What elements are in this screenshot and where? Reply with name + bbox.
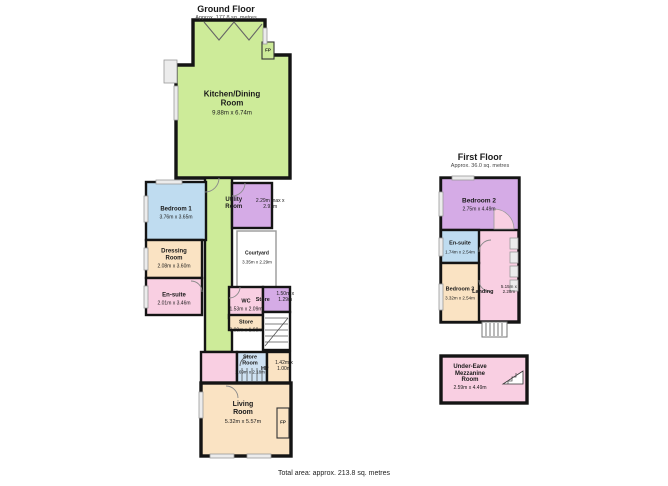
window <box>452 176 474 180</box>
floorplan-page: Ground Floor Approx. 177.8 sq. metres Fi… <box>0 0 668 486</box>
room-dressing <box>146 240 202 278</box>
window <box>439 284 443 310</box>
room-hp <box>267 352 290 383</box>
floorplan-drawing <box>0 0 668 486</box>
plan-area-text: Approx. 36.0 sq. metres <box>451 163 509 170</box>
room-utility <box>232 183 272 228</box>
window <box>144 196 148 222</box>
window <box>144 286 148 308</box>
room-store-lower <box>229 315 263 330</box>
window <box>439 192 443 216</box>
fireplace-kitchen <box>262 42 274 59</box>
mezzanine-plan <box>441 356 527 403</box>
total-area-text: Total area: approx. 213.8 sq. metres <box>278 470 390 477</box>
room-ensuite-first <box>441 230 479 263</box>
window <box>199 392 203 418</box>
fireplace-living <box>277 408 289 438</box>
courtyard-area <box>237 231 276 287</box>
window <box>439 238 443 256</box>
window <box>247 454 271 458</box>
room-ensuite-ground <box>146 278 202 315</box>
window <box>174 86 178 120</box>
room-bedroom1 <box>146 182 206 240</box>
window <box>144 248 148 270</box>
window <box>156 180 182 184</box>
first-floor-title: First Floor Approx. 36.0 sq. metres <box>451 152 509 170</box>
plan-area-text: Approx. 177.8 sq. metres <box>195 15 256 22</box>
window <box>210 454 234 458</box>
window-bay <box>164 60 177 83</box>
window <box>263 28 267 44</box>
ground-floor-title: Ground Floor Approx. 177.8 sq. metres <box>195 4 256 22</box>
room-store-upper <box>263 287 290 312</box>
first-floor-plan <box>439 176 519 337</box>
ground-floor-plan <box>144 20 291 458</box>
hall-lower <box>201 352 237 386</box>
stairs-icon-first-floor <box>482 322 507 337</box>
plan-title-text: First Floor <box>451 152 509 163</box>
plan-title-text: Ground Floor <box>195 4 256 15</box>
room-bedroom3 <box>441 263 479 322</box>
room-wc <box>229 287 263 318</box>
